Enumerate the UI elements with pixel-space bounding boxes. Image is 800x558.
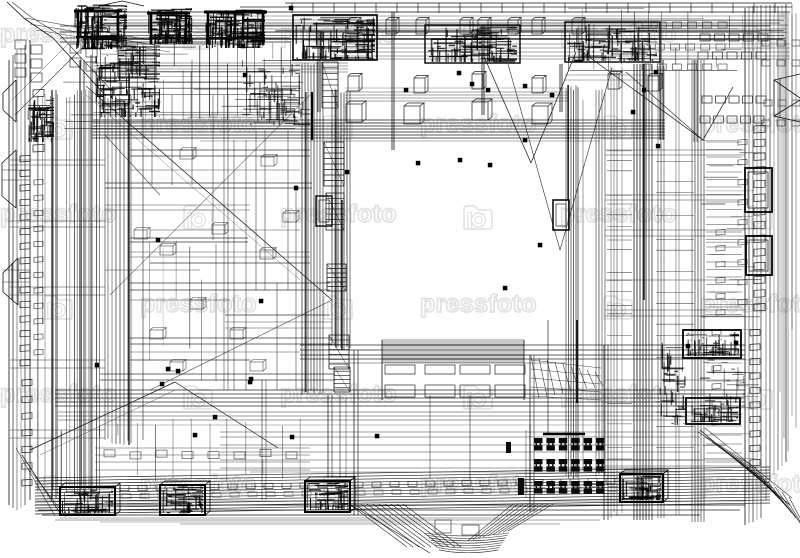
svg-text:pressfoto: pressfoto: [700, 290, 800, 318]
svg-text:pressfoto: pressfoto: [0, 200, 116, 228]
svg-text:pressfoto: pressfoto: [420, 290, 536, 318]
svg-text:pressfoto: pressfoto: [420, 110, 536, 138]
svg-text:pressfoto: pressfoto: [140, 290, 256, 318]
svg-text:pressfoto: pressfoto: [700, 470, 800, 498]
svg-text:pressfoto: pressfoto: [140, 110, 256, 138]
